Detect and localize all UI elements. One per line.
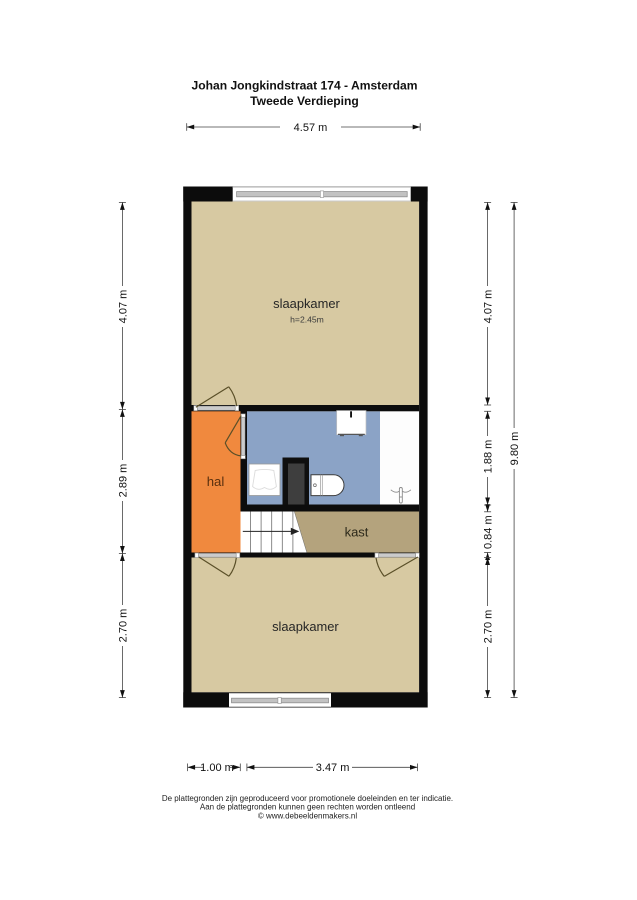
svg-text:h=2.45m: h=2.45m	[290, 314, 324, 324]
svg-text:Tweede Verdieping: Tweede Verdieping	[250, 94, 359, 108]
svg-text:Johan Jongkindstraat 174 - Ams: Johan Jongkindstraat 174 - Amsterdam	[191, 79, 417, 93]
svg-text:4.57 m: 4.57 m	[294, 122, 328, 134]
svg-text:Aan de plattegronden kunnen ge: Aan de plattegronden kunnen geen rechten…	[200, 803, 415, 812]
svg-text:9.80 m: 9.80 m	[509, 432, 521, 466]
svg-text:slaapkamer: slaapkamer	[273, 296, 340, 311]
svg-text:2.70 m: 2.70 m	[117, 609, 129, 643]
svg-text:2.70 m: 2.70 m	[483, 610, 495, 644]
svg-text:1.88 m: 1.88 m	[483, 440, 495, 474]
svg-text:1.00 m: 1.00 m	[200, 762, 234, 774]
svg-text:4.07 m: 4.07 m	[483, 290, 495, 324]
svg-text:kast: kast	[345, 524, 369, 539]
svg-text:slaapkamer: slaapkamer	[272, 619, 339, 634]
svg-text:3.47 m: 3.47 m	[316, 762, 350, 774]
svg-text:© www.debeeldenmakers.nl: © www.debeeldenmakers.nl	[258, 811, 358, 820]
svg-text:2.89 m: 2.89 m	[117, 464, 129, 498]
svg-text:4.07 m: 4.07 m	[117, 290, 129, 324]
svg-text:hal: hal	[207, 474, 225, 489]
svg-text:De plattegronden zijn geproduc: De plattegronden zijn geproduceerd voor …	[162, 794, 453, 803]
svg-text:0.84 m: 0.84 m	[483, 515, 495, 549]
